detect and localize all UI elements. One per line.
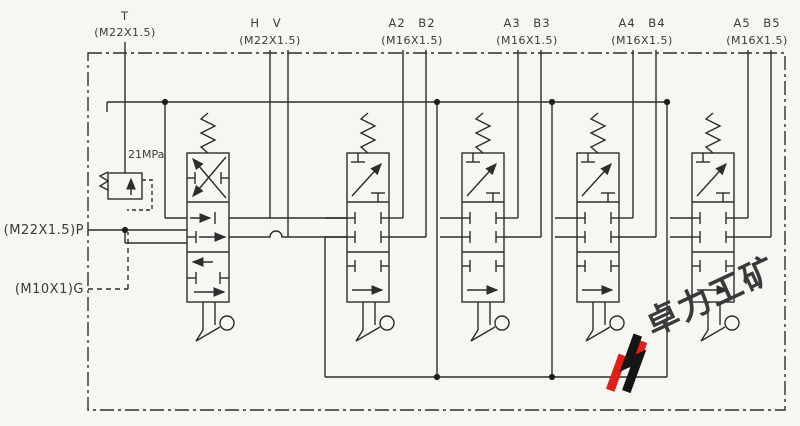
watermark-logo-icon bbox=[598, 338, 655, 393]
port-thread-t: (M22X1.5) bbox=[94, 26, 156, 39]
port-label-hv: H V bbox=[250, 16, 281, 30]
port-label-a3b3: A3 B3 bbox=[503, 16, 550, 30]
lever-icon bbox=[196, 302, 234, 341]
port-label-p: (M22X1.5)P bbox=[4, 223, 84, 238]
g-port-line bbox=[88, 232, 128, 289]
valve-section-4 bbox=[555, 50, 656, 341]
spring-icon bbox=[201, 113, 215, 153]
valve-section-3 bbox=[440, 50, 541, 341]
port-thread-a4b4: (M16X1.5) bbox=[611, 34, 673, 47]
port-label-g: (M10X1)G bbox=[15, 282, 84, 297]
port-label-t: T bbox=[120, 9, 129, 23]
port-label-a2b2: A2 B2 bbox=[388, 16, 435, 30]
port-thread-a5b5: (M16X1.5) bbox=[726, 34, 788, 47]
hydraulic-schematic-page: T (M22X1.5) H V (M22X1.5) A2 B2 (M16X1.5… bbox=[0, 0, 800, 426]
hydraulic-schematic-svg: T (M22X1.5) H V (M22X1.5) A2 B2 (M16X1.5… bbox=[0, 0, 800, 426]
port-labels-top: T (M22X1.5) H V (M22X1.5) A2 B2 (M16X1.5… bbox=[94, 9, 788, 47]
port-label-a5b5: A5 B5 bbox=[733, 16, 780, 30]
watermark-text: 卓力工矿 bbox=[639, 249, 782, 344]
relief-valve bbox=[100, 172, 152, 210]
relief-spring-icon bbox=[100, 172, 108, 190]
port-thread-a3b3: (M16X1.5) bbox=[496, 34, 558, 47]
port-label-a4b4: A4 B4 bbox=[618, 16, 665, 30]
pipework bbox=[88, 42, 667, 377]
port-thread-hv: (M22X1.5) bbox=[239, 34, 301, 47]
watermark: 卓力工矿 bbox=[587, 249, 795, 393]
valve-section-2 bbox=[325, 50, 426, 341]
port-thread-a2b2: (M16X1.5) bbox=[381, 34, 443, 47]
relief-pressure-label: 21MPa bbox=[128, 148, 164, 161]
valve-section-1 bbox=[187, 113, 234, 341]
